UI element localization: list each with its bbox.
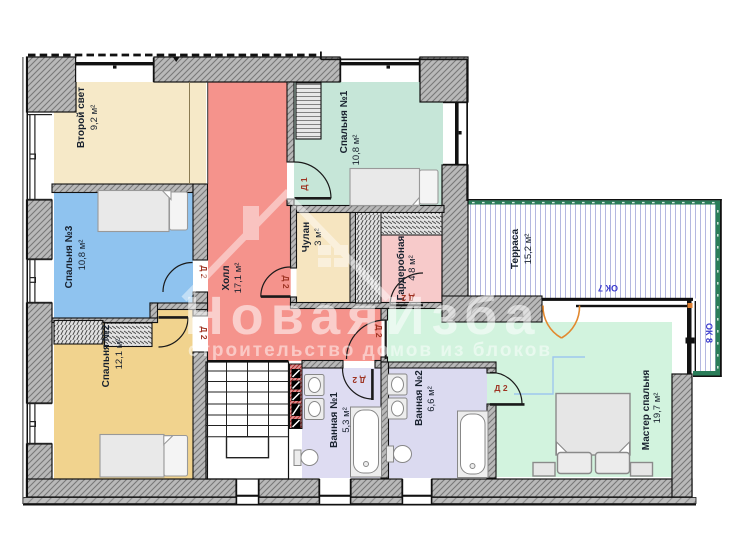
svg-text:ОК 8: ОК 8 xyxy=(704,323,714,343)
svg-text:10,8 м²: 10,8 м² xyxy=(77,240,88,271)
svg-text:Второй свет: Второй свет xyxy=(76,87,87,148)
svg-text:9,2 м²: 9,2 м² xyxy=(89,105,100,131)
svg-text:Спальня №2: Спальня №2 xyxy=(101,324,112,387)
svg-text:Д 2: Д 2 xyxy=(352,375,365,385)
svg-text:Д 1: Д 1 xyxy=(299,177,309,190)
svg-text:Спальня №3: Спальня №3 xyxy=(64,225,75,288)
svg-text:Ванная №2: Ванная №2 xyxy=(414,370,425,426)
svg-text:Чулан: Чулан xyxy=(301,222,312,252)
svg-text:строительство домов из блоков: строительство домов из блоков xyxy=(188,340,552,361)
svg-text:НоваяИзба: НоваяИзба xyxy=(185,286,542,346)
svg-text:5,3 м²: 5,3 м² xyxy=(341,407,352,433)
svg-text:Мастер спальня: Мастер спальня xyxy=(641,370,652,451)
svg-text:12,1 м²: 12,1 м² xyxy=(114,339,125,370)
svg-text:Терраса: Терраса xyxy=(510,228,521,269)
svg-text:Спальня №1: Спальня №1 xyxy=(339,90,350,153)
svg-text:Ванная №1: Ванная №1 xyxy=(329,392,340,448)
svg-text:6,6 м²: 6,6 м² xyxy=(426,386,437,412)
svg-text:ОК 7: ОК 7 xyxy=(598,283,618,293)
svg-text:10,8 м²: 10,8 м² xyxy=(351,135,362,166)
svg-text:19,7 м²: 19,7 м² xyxy=(652,393,663,424)
svg-text:15,2 м²: 15,2 м² xyxy=(523,234,534,265)
svg-text:Д 2: Д 2 xyxy=(494,383,507,393)
svg-text:4,8 м²: 4,8 м² xyxy=(407,255,418,281)
